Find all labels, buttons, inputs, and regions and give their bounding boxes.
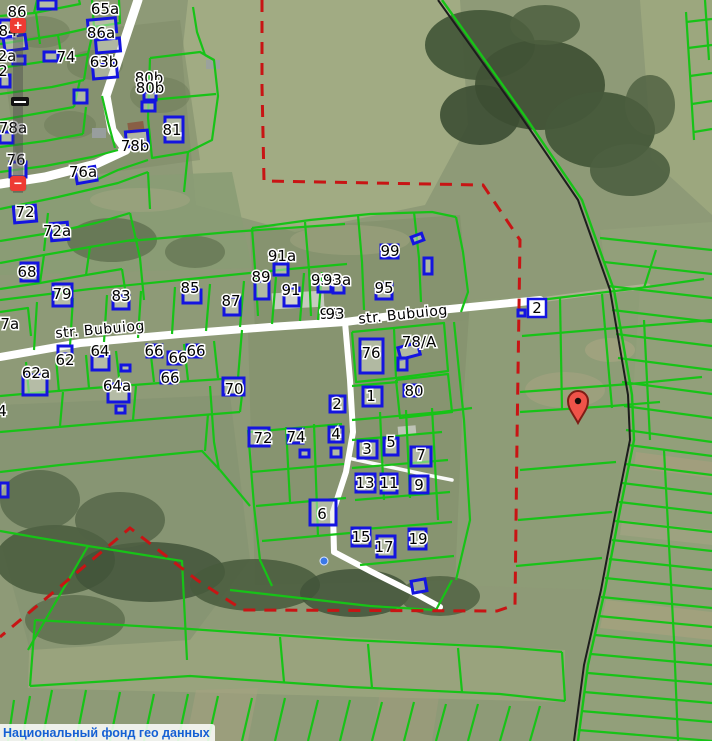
house-number-label: 74 xyxy=(56,48,75,66)
house-number-label: 2 xyxy=(332,395,342,413)
zoom-out-button[interactable]: − xyxy=(10,176,26,191)
house-number-label: 72 xyxy=(253,429,272,447)
house-number-label: 3 xyxy=(362,440,372,458)
house-number-label: 93 xyxy=(325,305,344,323)
house-number-label: 87 xyxy=(221,292,240,310)
house-number-label: 89 xyxy=(251,268,270,286)
house-number-label: 93a xyxy=(323,271,351,289)
house-number-label: 86a xyxy=(87,24,115,42)
building-outline xyxy=(121,365,130,371)
house-number-label: 76 xyxy=(361,344,380,362)
parcel-boundary-line xyxy=(206,284,210,331)
house-number-label: 62a xyxy=(22,364,50,382)
house-number-label: 15 xyxy=(351,528,370,546)
terrain-vegetation xyxy=(625,75,675,135)
house-number-label: 2 xyxy=(0,62,8,80)
house-number-label: 19 xyxy=(408,530,427,548)
building-outline xyxy=(411,579,427,593)
building-outline xyxy=(518,310,525,316)
parcel-boundary-line xyxy=(468,704,478,741)
house-number-label: 6 xyxy=(317,505,327,523)
house-number-label: 17 xyxy=(374,538,393,556)
house-number-label: 11 xyxy=(379,474,398,492)
building-outline xyxy=(38,0,56,9)
house-number-label: 64 xyxy=(90,342,109,360)
terrain-vegetation xyxy=(90,188,190,212)
house-number-label: 66 xyxy=(168,349,187,367)
terrain-vegetation xyxy=(190,559,320,611)
house-number-label: 78/A xyxy=(402,333,437,351)
house-number-label: 78b xyxy=(121,137,150,155)
house-number-label: 79 xyxy=(52,285,71,303)
house-number-label: 91a xyxy=(268,247,296,265)
house-number-label: 7 xyxy=(416,446,426,464)
house-number-label: 81 xyxy=(162,121,181,139)
map-marker-dot xyxy=(575,398,581,404)
map-canvas: 286842a265a86a7463b80b80b8178b78a7676a72… xyxy=(0,0,712,741)
house-number-label: 76a xyxy=(69,163,97,181)
building-outline xyxy=(300,450,309,457)
attribution-link[interactable]: Национальный фонд гео данных xyxy=(0,724,215,741)
house-number-label: 80 xyxy=(404,382,423,400)
terrain-vegetation xyxy=(44,111,96,139)
house-number-label: 74 xyxy=(286,428,305,446)
building-outline xyxy=(0,483,8,497)
building-outline xyxy=(331,448,341,457)
house-number-label: 72 xyxy=(15,203,34,221)
parcel-boundary-line xyxy=(86,355,89,388)
zoom-slider-handle[interactable] xyxy=(11,97,29,106)
building-outline xyxy=(424,258,432,274)
terrain-vegetation xyxy=(590,144,670,196)
zoom-slider-track[interactable] xyxy=(13,33,23,193)
house-number-label: 2 xyxy=(532,299,542,317)
terrain-vegetation xyxy=(75,492,165,548)
house-number-label: 64a xyxy=(103,377,131,395)
rooftop xyxy=(92,128,106,138)
blue-point-marker xyxy=(320,557,328,565)
house-number-label: 65a xyxy=(91,0,119,18)
house-number-label: 66 xyxy=(160,369,179,387)
house-number-label: 1 xyxy=(366,387,376,405)
building-outline xyxy=(411,233,424,243)
house-number-label: 4 xyxy=(331,425,341,443)
parcel-boundary-line xyxy=(500,706,510,741)
building-outline xyxy=(398,358,407,370)
zoom-slider-control: + − xyxy=(10,18,26,33)
house-number-label: 9 xyxy=(414,476,424,494)
house-number-label: 62 xyxy=(55,351,74,369)
house-number-label: 68 xyxy=(17,263,36,281)
building-outline xyxy=(274,264,288,275)
house-number-label: 63b xyxy=(90,53,119,71)
terrain-vegetation xyxy=(510,5,580,45)
terrain-vegetation xyxy=(0,470,80,530)
rooftop xyxy=(206,60,220,69)
building-outline xyxy=(142,102,155,111)
parcel-boundary-line xyxy=(172,287,175,334)
house-number-label: 70 xyxy=(224,380,243,398)
house-number-label: 85 xyxy=(180,279,199,297)
parcel-boundary-line xyxy=(34,302,37,350)
house-number-label: 99 xyxy=(380,242,399,260)
terrain-vegetation xyxy=(165,236,225,268)
building-outline xyxy=(74,90,87,103)
parcel-boundary-line xyxy=(214,341,218,378)
house-number-label: 72a xyxy=(43,222,71,240)
parcel-boundary-line xyxy=(530,706,540,741)
house-number-label: 66 xyxy=(186,342,205,360)
parcel-boundary-line xyxy=(308,700,318,741)
house-number-label: 5 xyxy=(386,433,396,451)
house-number-label: 83 xyxy=(111,287,130,305)
map-viewport[interactable]: 286842a265a86a7463b80b80b8178b78a7676a72… xyxy=(0,0,712,741)
house-number-label: 13 xyxy=(355,474,374,492)
house-number-label: 80b xyxy=(136,79,165,97)
parcel-boundary-line xyxy=(340,700,350,741)
zoom-in-button[interactable]: + xyxy=(10,18,26,33)
parcel-boundary-line xyxy=(436,704,446,741)
house-number-label: 77a xyxy=(0,315,19,333)
parcel-boundary-line xyxy=(275,698,285,741)
parcel-boundary-line xyxy=(238,330,242,378)
house-number-label: 91 xyxy=(281,281,300,299)
house-number-label: 4 xyxy=(0,402,7,420)
house-number-label: 95 xyxy=(374,279,393,297)
house-number-label: 66 xyxy=(144,342,163,360)
building-outline xyxy=(116,406,125,413)
